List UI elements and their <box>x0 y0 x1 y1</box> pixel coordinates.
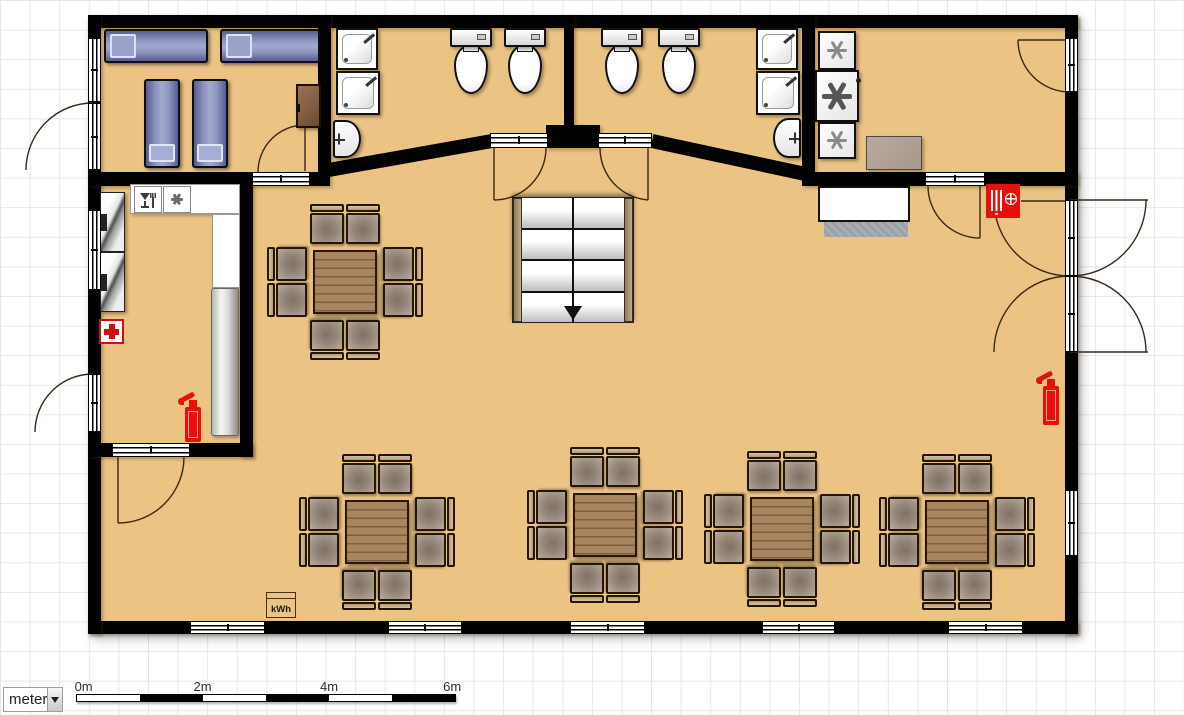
chair-backrest <box>704 494 712 528</box>
chair[interactable] <box>299 497 341 531</box>
chair-backrest <box>747 451 781 459</box>
chair-backrest <box>606 595 640 603</box>
chair-seat <box>783 460 817 491</box>
chair-backrest <box>310 204 344 212</box>
chair[interactable] <box>381 283 423 317</box>
door-bathroom-left[interactable] <box>490 133 548 148</box>
unit-selector[interactable]: meter <box>3 687 63 712</box>
toilet[interactable] <box>504 28 546 102</box>
chair[interactable] <box>346 318 380 360</box>
generated-furniture-layer <box>0 0 1184 715</box>
chair-seat <box>536 526 567 560</box>
chair[interactable] <box>346 204 380 246</box>
chair-backrest <box>342 454 376 462</box>
chair[interactable] <box>922 568 956 610</box>
chair-backrest <box>447 533 455 567</box>
flush-button <box>628 34 637 40</box>
door-bedroom[interactable] <box>252 172 310 186</box>
chair-seat <box>310 320 344 351</box>
dining-table[interactable] <box>313 250 377 314</box>
chair[interactable] <box>342 568 376 610</box>
chair[interactable] <box>993 497 1035 531</box>
chair-backrest <box>346 204 380 212</box>
window[interactable] <box>88 210 101 290</box>
chair-seat <box>922 570 956 601</box>
chair[interactable] <box>747 451 781 493</box>
dropdown-button[interactable] <box>47 688 62 711</box>
chair-seat <box>276 283 307 317</box>
double-door-leaf-top[interactable] <box>1065 200 1078 276</box>
chair-seat <box>570 456 604 487</box>
chair[interactable] <box>879 533 921 567</box>
window[interactable] <box>88 38 101 102</box>
toilet-tank <box>504 28 546 47</box>
chair[interactable] <box>299 533 341 567</box>
chair-seat <box>342 463 376 494</box>
chair[interactable] <box>378 454 412 496</box>
flush-button <box>477 34 486 40</box>
door-bathroom-right[interactable] <box>598 133 652 148</box>
chair-seat <box>713 530 744 564</box>
chair[interactable] <box>342 454 376 496</box>
toilet-tank <box>658 28 700 47</box>
chair-backrest <box>346 352 380 360</box>
chair-seat <box>995 497 1026 531</box>
chair[interactable] <box>381 247 423 281</box>
chair-backrest <box>415 247 423 281</box>
dining-table[interactable] <box>573 493 637 557</box>
chair-backrest <box>922 602 956 610</box>
chair[interactable] <box>267 283 309 317</box>
chair-seat <box>378 463 412 494</box>
flush-button <box>685 34 694 40</box>
window[interactable] <box>388 621 462 634</box>
chair[interactable] <box>378 568 412 610</box>
unit-selector-value: meter <box>4 688 47 711</box>
chair-backrest <box>342 602 376 610</box>
chair[interactable] <box>606 561 640 603</box>
chair-seat <box>346 320 380 351</box>
chair[interactable] <box>570 561 604 603</box>
chair-backrest <box>267 247 275 281</box>
chair-backrest <box>299 533 307 567</box>
chair-seat <box>383 283 414 317</box>
chair-backrest <box>852 530 860 564</box>
chair-backrest <box>570 595 604 603</box>
chair-backrest <box>606 447 640 455</box>
toilet-bowl <box>454 44 488 94</box>
chair-seat <box>308 533 339 567</box>
chair-seat <box>570 563 604 594</box>
chair-seat <box>747 460 781 491</box>
toilet-tank <box>450 28 492 47</box>
chair-backrest <box>879 497 887 531</box>
door-kitchen[interactable] <box>112 443 190 457</box>
scale-label: 4m <box>320 679 338 694</box>
door-entry-left-top[interactable] <box>88 103 101 170</box>
chair[interactable] <box>704 530 746 564</box>
chair[interactable] <box>606 447 640 489</box>
chair[interactable] <box>413 533 455 567</box>
chair-seat <box>958 570 992 601</box>
chair-backrest <box>527 490 535 524</box>
window[interactable] <box>190 621 265 634</box>
chair[interactable] <box>879 497 921 531</box>
chair-seat <box>820 494 851 528</box>
chair-seat <box>643 490 674 524</box>
chair-backrest <box>267 283 275 317</box>
chair-seat <box>383 247 414 281</box>
chair-seat <box>888 497 919 531</box>
chair-backrest <box>527 526 535 560</box>
window[interactable] <box>570 621 645 634</box>
chair-backrest <box>747 599 781 607</box>
chair-seat <box>606 563 640 594</box>
chair-seat <box>415 497 446 531</box>
chair-backrest <box>958 602 992 610</box>
door-entry-left-bottom[interactable] <box>88 374 101 432</box>
chair[interactable] <box>783 451 817 493</box>
chair[interactable] <box>310 204 344 246</box>
scale-bar: 0m 2m 4m 6m <box>76 679 456 705</box>
chair-seat <box>606 456 640 487</box>
toilet-bowl <box>605 44 639 94</box>
toilet[interactable] <box>658 28 700 102</box>
chair[interactable] <box>310 318 344 360</box>
chair[interactable] <box>993 533 1035 567</box>
dining-table[interactable] <box>750 497 814 561</box>
scale-label: 2m <box>194 679 212 694</box>
window[interactable] <box>762 621 835 634</box>
chair[interactable] <box>641 526 683 560</box>
chair-seat <box>342 570 376 601</box>
scale-label: 6m <box>443 679 461 694</box>
chair[interactable] <box>783 565 817 607</box>
door-laundry-topright[interactable] <box>1065 38 1078 92</box>
chair-seat <box>888 533 919 567</box>
flush-button <box>531 34 540 40</box>
chair-backrest <box>922 454 956 462</box>
chair-seat <box>310 213 344 244</box>
window[interactable] <box>948 621 1023 634</box>
scale-bar-segments <box>76 694 456 702</box>
chair-seat <box>958 463 992 494</box>
chair-backrest <box>570 447 604 455</box>
chair[interactable] <box>818 494 860 528</box>
chair[interactable] <box>570 447 604 489</box>
chair-backrest <box>299 497 307 531</box>
chair-seat <box>820 530 851 564</box>
chair[interactable] <box>527 490 569 524</box>
chair[interactable] <box>527 526 569 560</box>
chair-seat <box>747 567 781 598</box>
chair[interactable] <box>747 565 781 607</box>
window[interactable] <box>1065 490 1078 556</box>
chair[interactable] <box>818 530 860 564</box>
chair[interactable] <box>413 497 455 531</box>
chair-seat <box>643 526 674 560</box>
toilet-bowl <box>662 44 696 94</box>
chair-backrest <box>378 602 412 610</box>
chair-seat <box>713 494 744 528</box>
dining-table[interactable] <box>345 500 409 564</box>
door-laundry[interactable] <box>925 172 985 186</box>
chair[interactable] <box>922 454 956 496</box>
chair-seat <box>995 533 1026 567</box>
chair-seat <box>308 497 339 531</box>
chair-backrest <box>783 599 817 607</box>
toilet-tank <box>601 28 643 47</box>
scale-label: 0m <box>75 679 93 694</box>
chair-backrest <box>1027 497 1035 531</box>
chair-backrest <box>415 283 423 317</box>
toilet[interactable] <box>450 28 492 102</box>
chair-seat <box>276 247 307 281</box>
floorplan-canvas: kWh meter 0m 2m 4m 6m <box>0 0 1184 715</box>
chair[interactable] <box>958 568 992 610</box>
chair[interactable] <box>641 490 683 524</box>
chair-seat <box>346 213 380 244</box>
chair-backrest <box>310 352 344 360</box>
dropdown-arrow-icon <box>51 697 59 703</box>
chair-backrest <box>1027 533 1035 567</box>
chair[interactable] <box>958 454 992 496</box>
chair-backrest <box>675 490 683 524</box>
chair-backrest <box>879 533 887 567</box>
chair-seat <box>922 463 956 494</box>
toilet-bowl <box>508 44 542 94</box>
chair-backrest <box>675 526 683 560</box>
chair[interactable] <box>267 247 309 281</box>
chair-seat <box>415 533 446 567</box>
chair-seat <box>536 490 567 524</box>
chair-backrest <box>852 494 860 528</box>
chair-seat <box>378 570 412 601</box>
chair-backrest <box>447 497 455 531</box>
chair-backrest <box>783 451 817 459</box>
double-door-leaf-bottom[interactable] <box>1065 276 1078 352</box>
chair-backrest <box>704 530 712 564</box>
chair-seat <box>783 567 817 598</box>
chair[interactable] <box>704 494 746 528</box>
chair-backrest <box>378 454 412 462</box>
toilet[interactable] <box>601 28 643 102</box>
dining-table[interactable] <box>925 500 989 564</box>
chair-backrest <box>958 454 992 462</box>
